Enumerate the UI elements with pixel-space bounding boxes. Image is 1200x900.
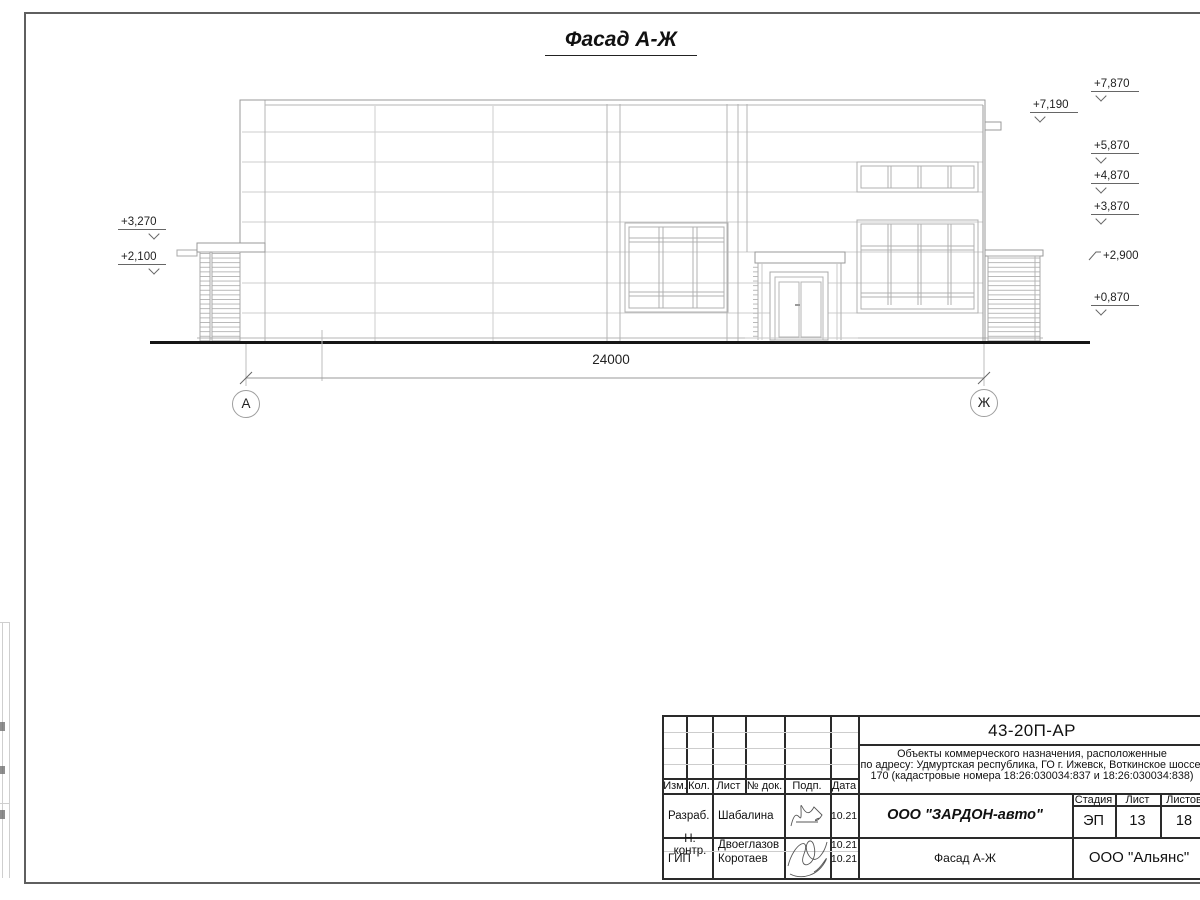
elevation-label: +2,900 [1101,250,1139,262]
elevation-label: +4,870 [1091,170,1139,184]
elevation-label: +2,100 [118,251,166,265]
dimension-label: 24000 [578,352,644,367]
elevation-label: +3,870 [1091,201,1139,215]
signature-date: 10.21 [830,808,858,823]
sheet-title: Фасад А-Ж [858,837,1072,878]
facade-drawing [0,0,1200,470]
col-header-list: Лист [712,778,745,793]
elevation-label: +7,870 [1091,78,1139,92]
elevation-mark: +7,190 [1030,99,1078,113]
elevation-label: +5,870 [1091,140,1139,154]
sheets-header: Листов [1160,794,1200,805]
person-name: Двоеглазов [714,838,784,852]
window-right-lower [857,220,978,313]
design-company: ООО "Альянс" [1072,837,1200,878]
elevation-label: +3,270 [118,216,166,230]
role-label: Н. контр. [664,838,712,852]
col-header-kol: Кол. [686,778,712,793]
role-label: ГИП [664,852,712,866]
signature-date: 10.21 [830,852,858,866]
col-header-ndok: № док. [745,778,784,793]
title-block: Изм. Кол. Лист № док. Подп. Дата Разраб.… [662,715,1200,880]
axis-bubble-a: А [232,390,260,418]
sheet-header: Лист [1115,794,1160,805]
col-header-podp: Подп. [784,778,830,793]
role-label: Разраб. [664,808,712,823]
sheets-total: 18 [1160,805,1200,837]
stage-header: Стадия [1072,794,1115,805]
elevation-mark: +5,870 [1091,140,1139,154]
project-code: 43-20П-АР [858,717,1200,744]
elevation-mark: +2,900 [1088,249,1139,262]
window-right-upper [857,162,978,192]
elevation-mark: +4,870 [1091,170,1139,184]
signature-date: 10.21 [830,838,858,852]
signature-scribble [784,794,830,880]
col-header-data: Дата [830,778,858,793]
window-mid [625,223,728,312]
sheet-number: 13 [1115,805,1160,837]
elevation-label: +7,190 [1030,99,1078,113]
person-name: Коротаев [714,852,784,866]
project-description: Объекты коммерческого назначения, распол… [858,744,1200,798]
louver-left [177,243,265,341]
elevation-label: +0,870 [1091,292,1139,306]
elevation-mark: +3,870 [1091,201,1139,215]
elevation-mark: +3,270 [118,216,166,230]
louver-right [985,250,1043,341]
col-header-izm: Изм. [664,778,686,793]
person-name: Шабалина [714,808,784,823]
elevation-tick-icon [1088,249,1101,261]
ground-line [150,341,1090,344]
elevation-mark: +7,870 [1091,78,1139,92]
stage-value: ЭП [1072,805,1115,837]
elevation-mark: +0,870 [1091,292,1139,306]
drawing-sheet: { "title": "Фасад А-Ж", "drawing": { "di… [0,0,1200,900]
axis-bubble-zh: Ж [970,389,998,417]
entrance [745,252,858,340]
customer-org: ООО "ЗАРДОН-авто" [858,793,1072,837]
description-line: 170 (кадастровые номера 18:26:030034:837… [858,771,1200,782]
elevation-mark: +2,100 [118,251,166,265]
